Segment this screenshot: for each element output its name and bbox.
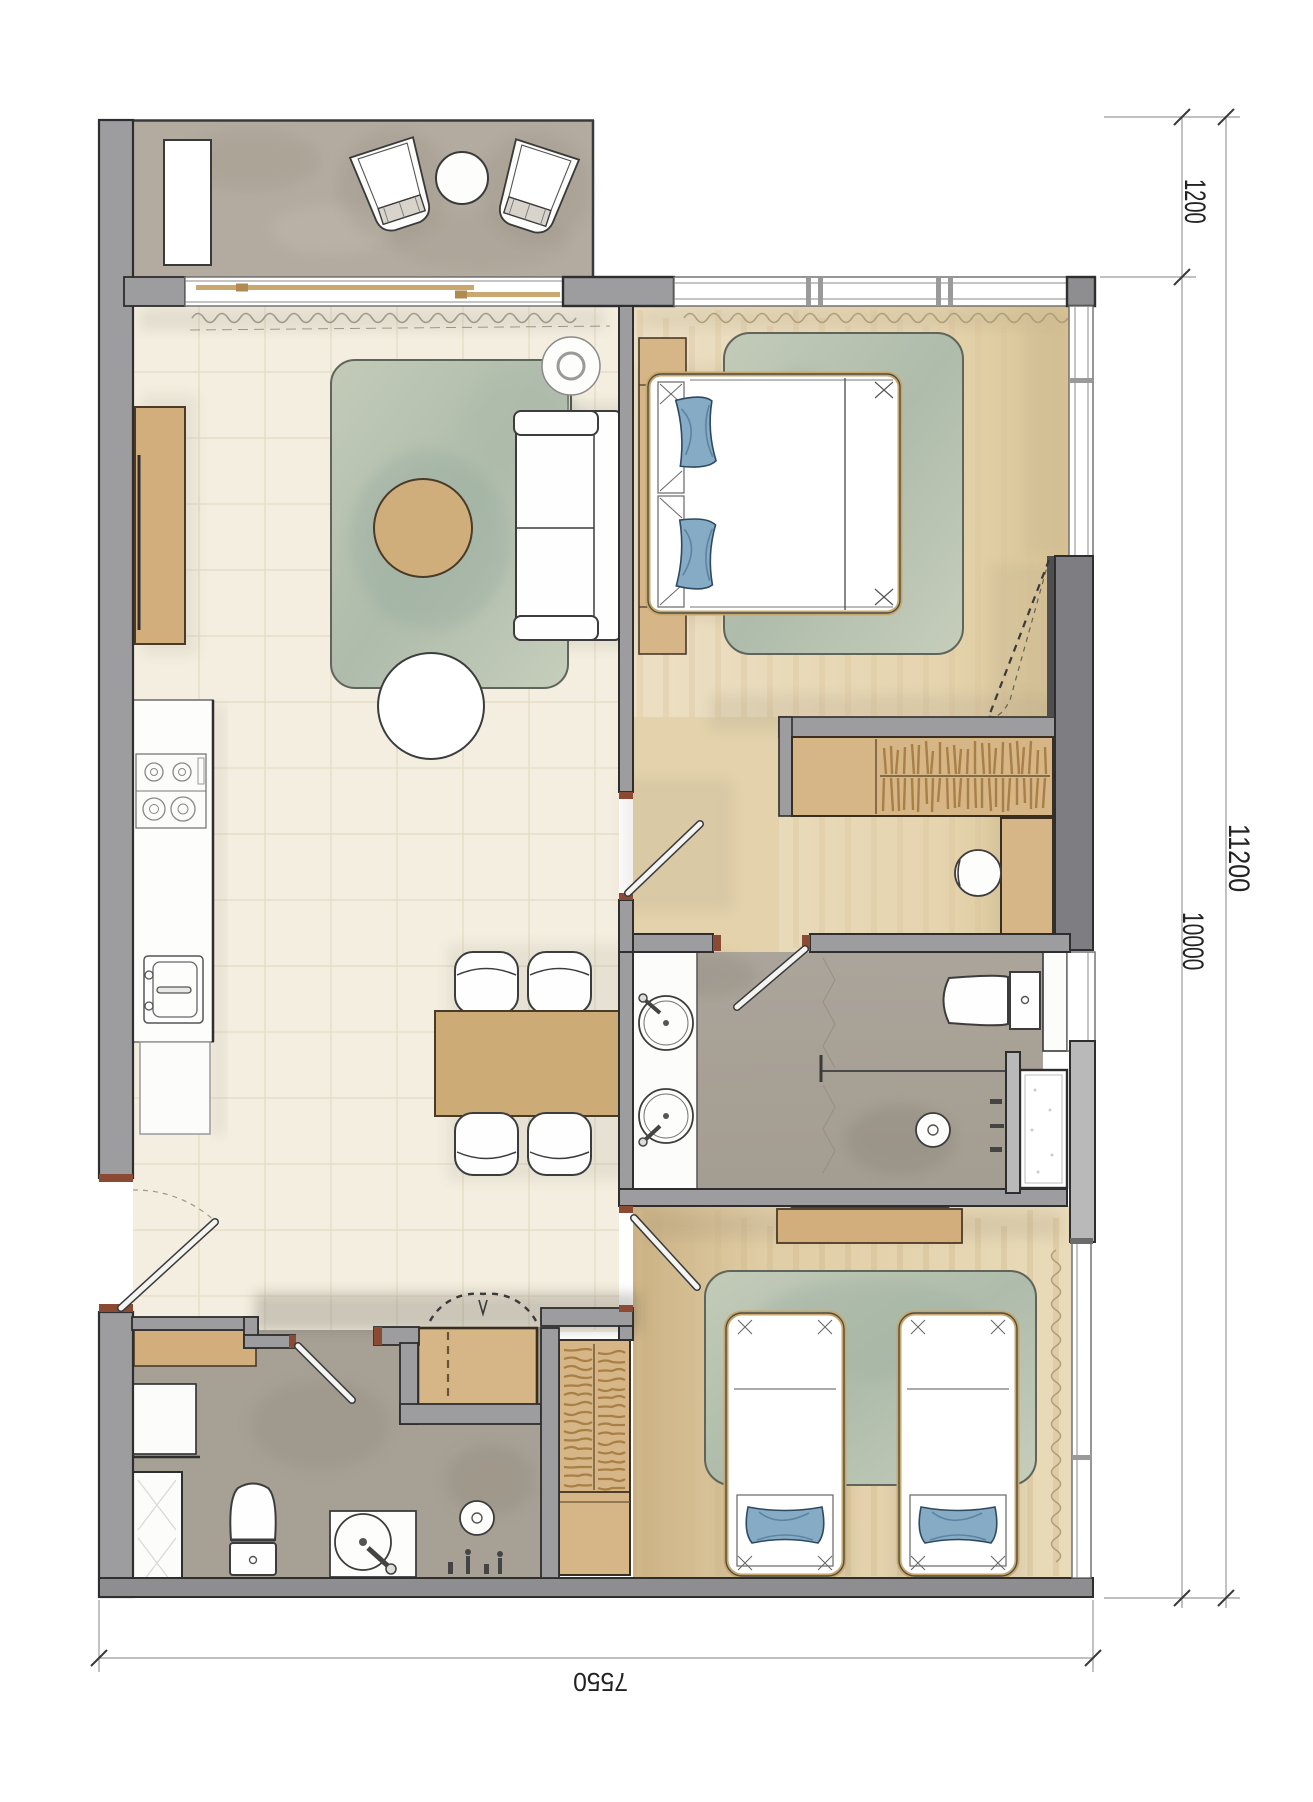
svg-text:10000: 10000	[1176, 912, 1208, 970]
svg-text:7550: 7550	[573, 1667, 628, 1696]
svg-text:1200: 1200	[1178, 179, 1211, 224]
svg-text:11200: 11200	[1223, 824, 1257, 892]
